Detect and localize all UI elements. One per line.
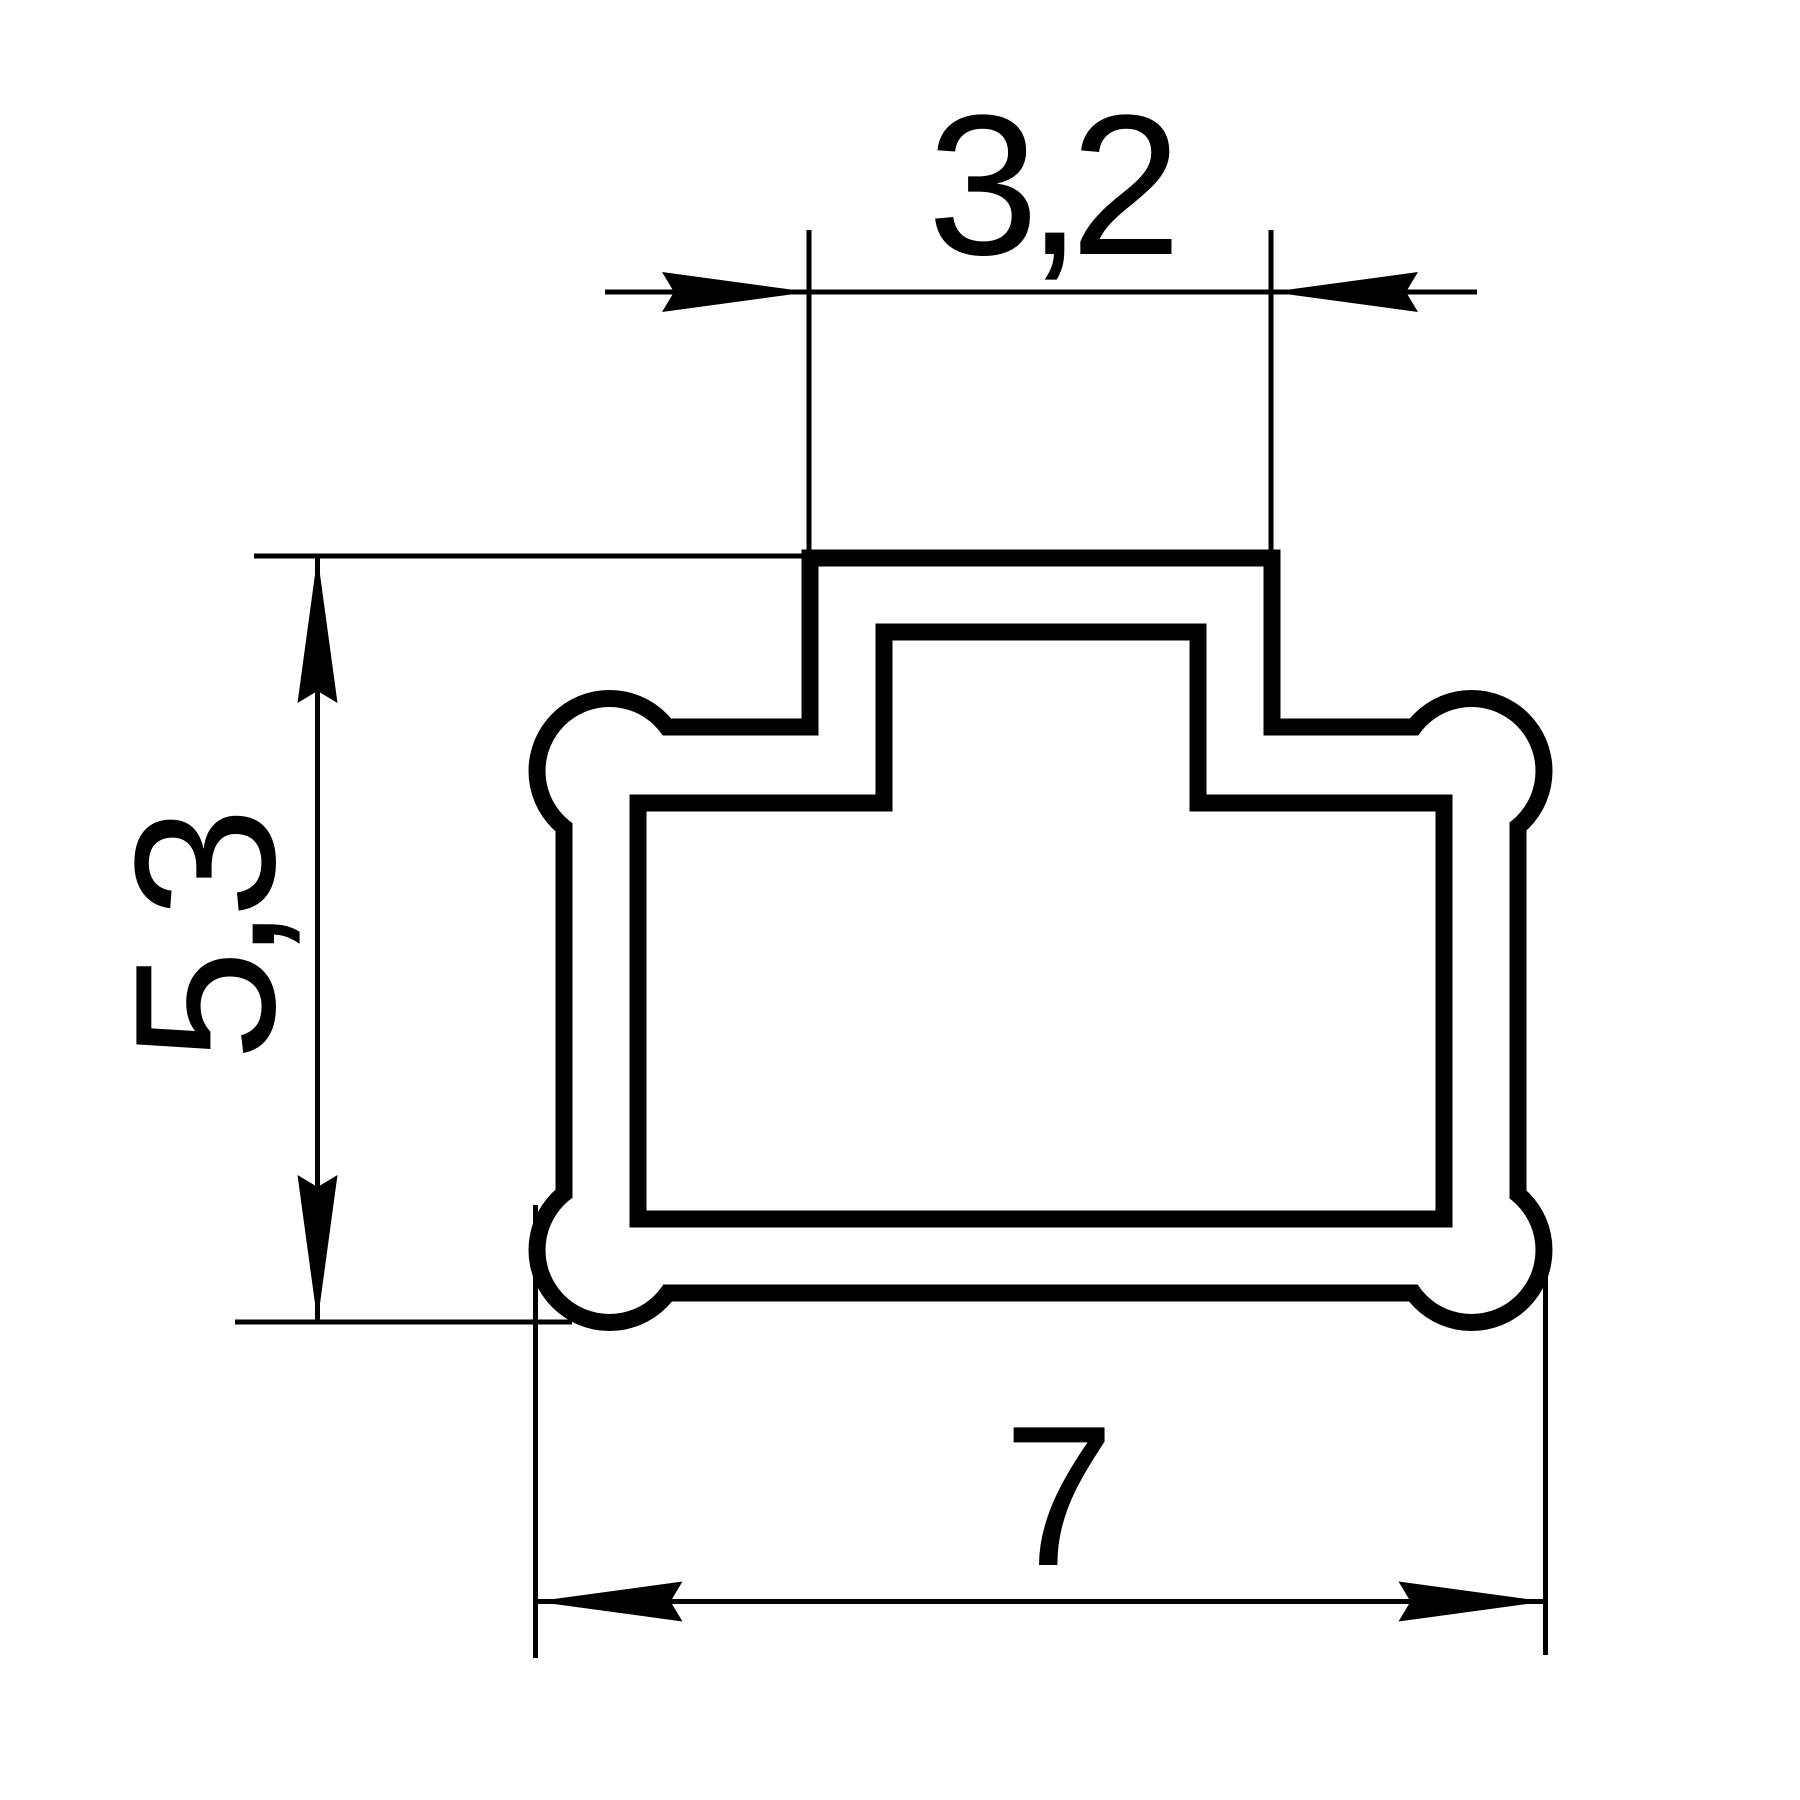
svg-text:3,2: 3,2 [927, 74, 1172, 297]
svg-text:5,3: 5,3 [94, 815, 317, 1061]
svg-text:7: 7 [1003, 1385, 1114, 1608]
